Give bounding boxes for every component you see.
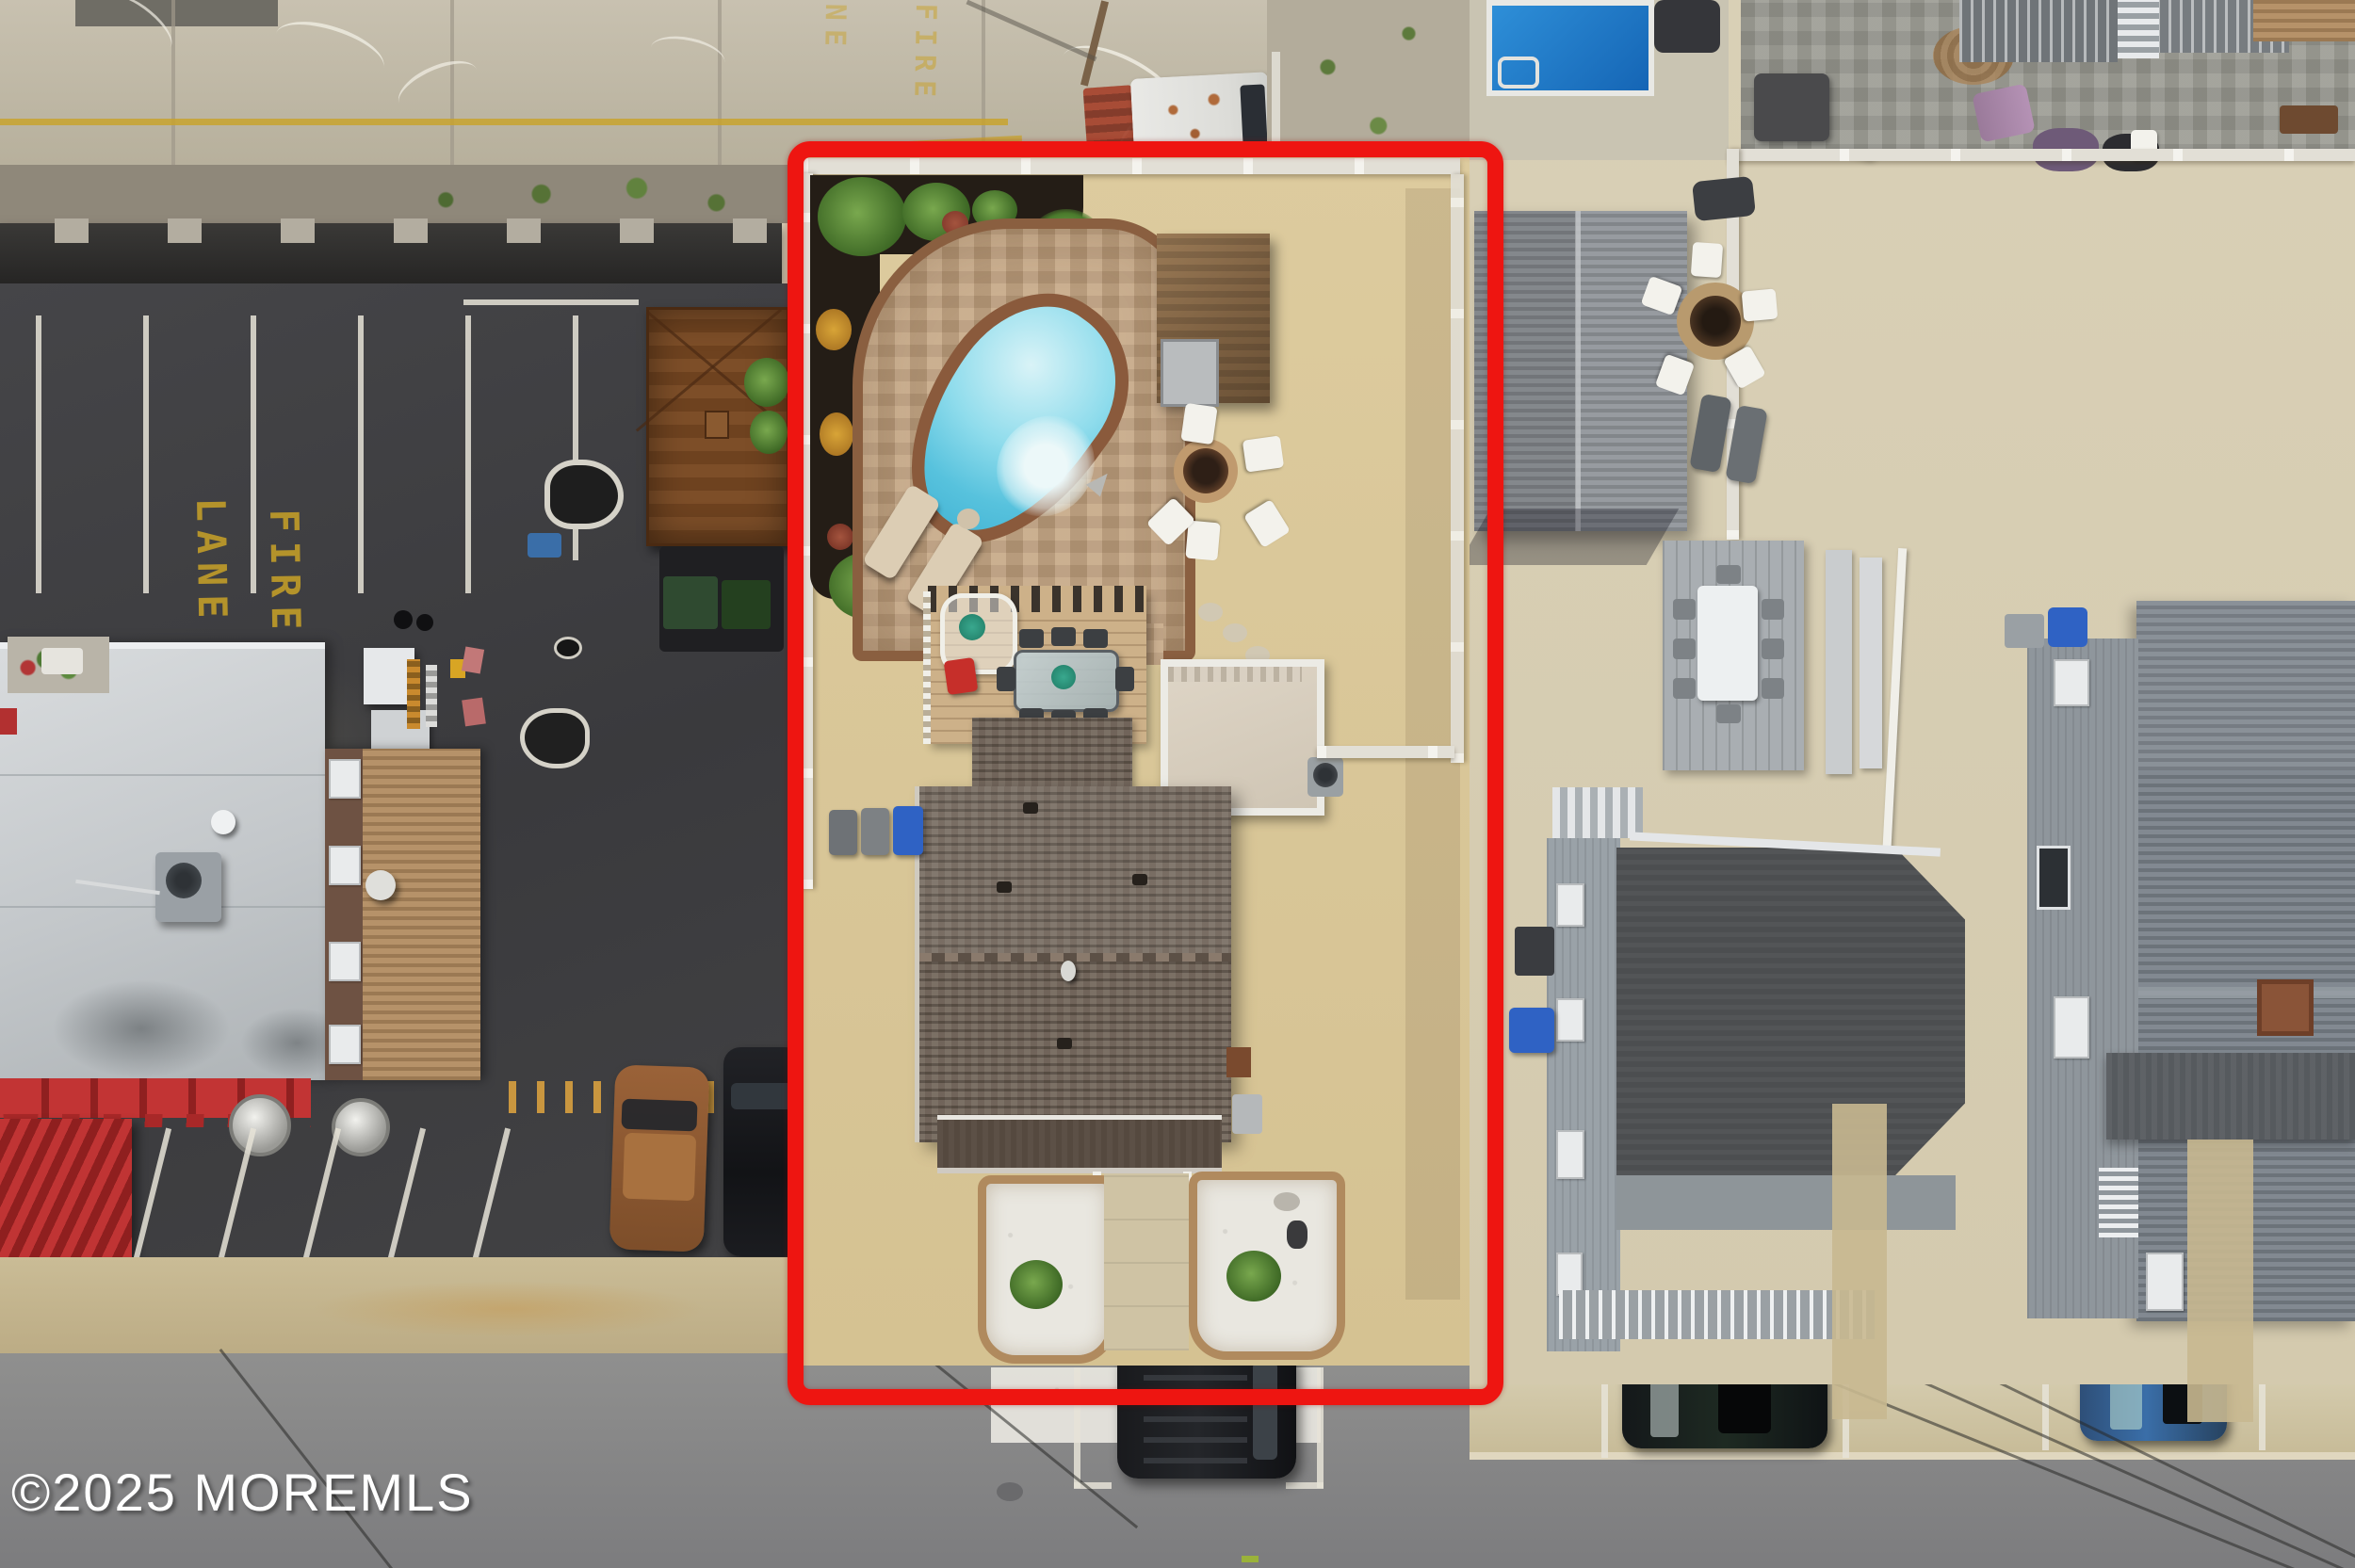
house3-porch-roof (2106, 1053, 2355, 1140)
brown-roof-corner (2253, 0, 2355, 41)
copper-car-windshield (621, 1099, 697, 1132)
pool-handrail (1498, 57, 1539, 89)
bench-light (1826, 550, 1852, 774)
house3-door-grid (2099, 1168, 2138, 1237)
gazebo-finial (705, 411, 729, 439)
elevated-deck (1959, 0, 2118, 62)
spare-wheel (416, 614, 433, 631)
spare-wheel (394, 610, 413, 629)
neighbor-firepit (1690, 296, 1741, 347)
green-dumpster (722, 580, 771, 629)
parking-stall-line (36, 315, 41, 593)
mls-watermark: ©2025 MOREMLS (11, 1462, 474, 1523)
pothole (544, 460, 624, 529)
wall-post (507, 218, 541, 243)
retaining-wall (0, 223, 782, 283)
pothole (520, 708, 590, 768)
house3-blue-bin (2048, 607, 2087, 647)
deck-chair (1762, 639, 1784, 659)
house3-window-dark (2037, 846, 2071, 910)
covered-item-dark (1654, 0, 1720, 53)
building-window (329, 942, 361, 981)
shrub (750, 411, 788, 454)
shrub (744, 358, 789, 407)
dirt-strip (0, 165, 796, 223)
deck-stairs (2118, 0, 2159, 58)
fire-lane-paint-top: FIRE (907, 3, 942, 105)
parking-stall-line (251, 315, 256, 593)
road-joint (171, 0, 175, 165)
blue-tarp (528, 533, 561, 558)
road-shadow-band (75, 0, 278, 26)
deck-chair (1762, 599, 1784, 620)
house2-dark-roof (1616, 848, 1965, 1175)
covered-grill (1692, 176, 1756, 221)
deck-chair (1673, 599, 1696, 620)
door-mat-brown (2280, 105, 2338, 134)
parking-bracket (1286, 1482, 1324, 1489)
house3-window (2146, 1253, 2184, 1311)
property-boundary-outline (788, 141, 1503, 1405)
metal-vent-cap (332, 1098, 390, 1156)
walk-path (1832, 1104, 1887, 1419)
aerial-photo: LANE FIRE LANE FIRE (0, 0, 2355, 1568)
patio-dining-table (1754, 73, 1829, 141)
wall-post (733, 218, 767, 243)
house3-ac-unit (2005, 614, 2044, 648)
road-joint (718, 0, 722, 165)
deck-chair (1673, 639, 1696, 659)
roof-vent (211, 810, 235, 834)
pothole-small (554, 637, 582, 659)
adirondack-chair (1691, 242, 1723, 278)
house3-chimney (2257, 979, 2314, 1036)
roof-seam (0, 774, 325, 776)
bench-light (1860, 558, 1882, 768)
building-window (329, 1025, 361, 1064)
fire-paint-word: FIRE (261, 509, 309, 639)
house3-roof-upper (2136, 601, 2355, 770)
hvac-fan (166, 863, 202, 898)
recycle-bin-blue (1509, 1008, 1554, 1053)
deck-chair (1673, 678, 1696, 699)
red-awning-sliver (0, 708, 17, 735)
ladder (407, 659, 420, 729)
house2-lower-roof (1616, 1175, 1956, 1230)
house2-porch-rail (1559, 1290, 1875, 1339)
corrugated-red-awning (0, 1119, 132, 1260)
manhole (997, 1482, 1023, 1501)
truck-windshield (1240, 84, 1267, 147)
building-window (329, 846, 361, 885)
copper-car-roof (623, 1133, 696, 1202)
lane-paint-word: LANE (187, 497, 235, 627)
house2-window (1556, 1130, 1584, 1179)
walk-path (2187, 1140, 2253, 1422)
parking-stall-line (358, 315, 364, 593)
house3-ridge-band (2136, 987, 2355, 998)
fire-lane-paint-top: LANE (818, 0, 853, 55)
wall-post (620, 218, 654, 243)
metal-vent-cap (229, 1094, 291, 1156)
adirondack-chair (1742, 288, 1778, 321)
outdoor-table-white (1697, 586, 1758, 701)
wall-post (168, 218, 202, 243)
parking-stall-line (465, 315, 471, 593)
paint-tick (1242, 1556, 1259, 1562)
yellow-curb-line (0, 119, 1008, 125)
deck-chair (1716, 704, 1741, 723)
wall-post (55, 218, 89, 243)
house2-window (1556, 883, 1584, 927)
round-roof-vent (365, 870, 396, 900)
pink-mat (462, 698, 486, 727)
deck-chair (1716, 565, 1741, 584)
bin-dark (1515, 927, 1554, 976)
house3-window (2054, 996, 2089, 1059)
white-stairs (1552, 787, 1643, 838)
green-dumpster (663, 576, 718, 629)
wall-post (281, 218, 315, 243)
ladder (426, 665, 437, 727)
deck-chair (1762, 678, 1784, 699)
neighbor-fence-horizontal (1729, 149, 2355, 161)
wall-post (394, 218, 428, 243)
parking-stall-line (143, 315, 149, 593)
rooftop-box (371, 710, 430, 750)
deck-table (41, 648, 83, 674)
parking-stall-line (463, 299, 639, 305)
black-suv-windshield (731, 1083, 793, 1109)
house3-window (2054, 659, 2089, 706)
sidewalk-stain (311, 1281, 706, 1337)
tree-shadow (52, 979, 231, 1078)
house2-window (1556, 998, 1584, 1042)
building-window (329, 759, 361, 799)
